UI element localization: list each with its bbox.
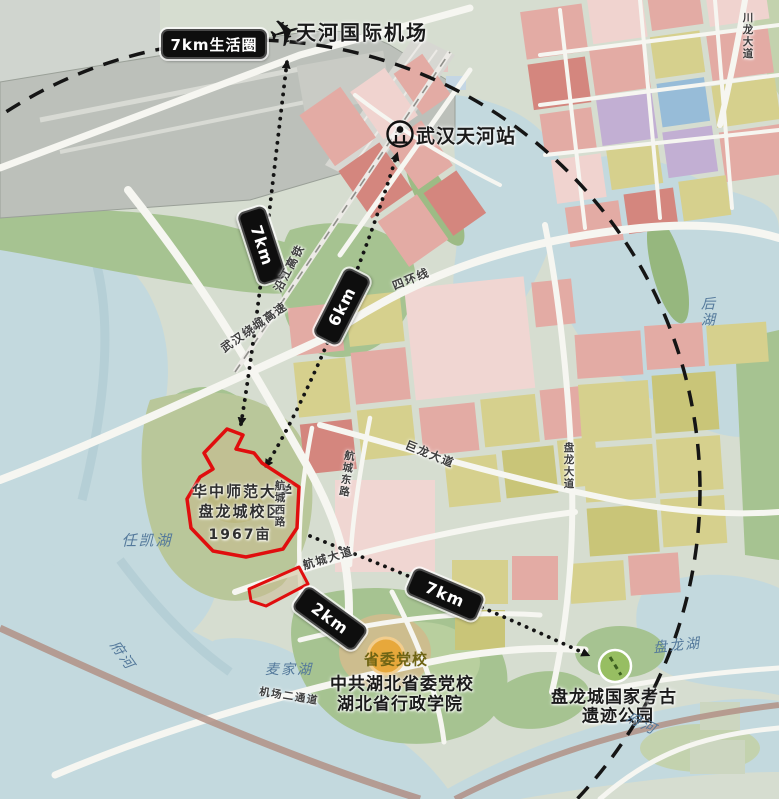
campus-area-label: 1967亩 [209,524,272,544]
maijia-lake-label: 麦家湖 [265,659,313,679]
party-school-line2: 湖北省行政学院 [337,690,463,715]
panlong-avenue-label: 盘龙大道 [562,442,577,490]
life-circle-badge: 7km生活圈 [161,29,267,59]
life-circle-badge-label: 7km生活圈 [170,34,257,55]
airport-label: 天河国际机场 [296,17,428,46]
train-station-icon [388,122,413,147]
party-school-marker-label: 省委党校 [364,649,428,670]
hangcheng-west-road-label: 航城西路 [273,480,288,528]
heritage-park-marker [599,650,631,682]
renkai-lake-label: 任凯湖 [121,530,172,551]
planning-map: 7km生活圈 ✈ 天河国际机场 武汉天河站 7km 6km 2km 7km 华中… [0,0,779,799]
campus-name-line2: 盘龙城校区 [198,501,283,522]
chuanlong-avenue-label: 川龙大道 [741,12,756,60]
station-label: 武汉天河站 [416,122,516,149]
hou-lake-label: 后湖 [696,296,716,328]
